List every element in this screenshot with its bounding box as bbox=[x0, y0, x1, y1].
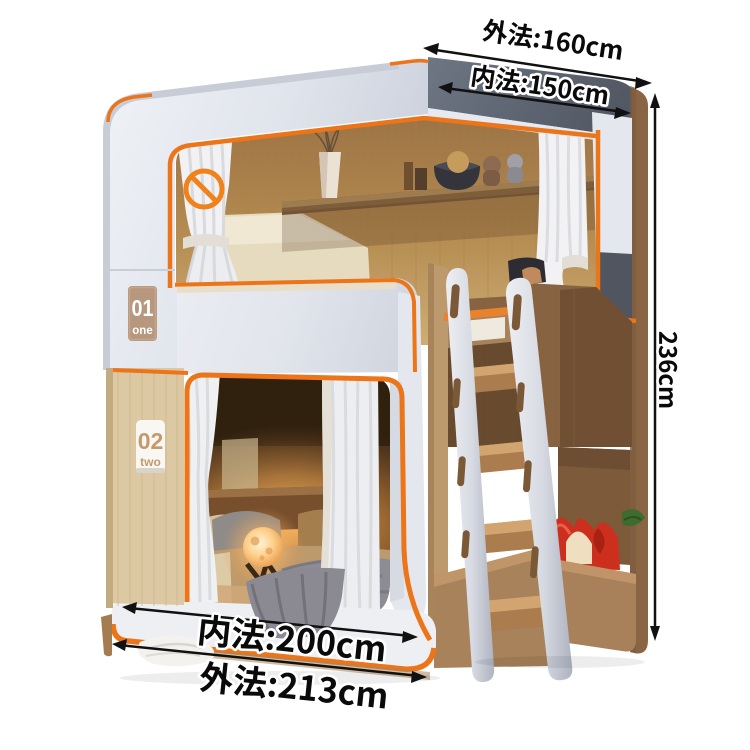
svg-text:01: 01 bbox=[132, 295, 154, 321]
svg-text:one: one bbox=[132, 325, 152, 337]
svg-text:two: two bbox=[140, 455, 161, 469]
svg-text:02: 02 bbox=[138, 428, 164, 454]
